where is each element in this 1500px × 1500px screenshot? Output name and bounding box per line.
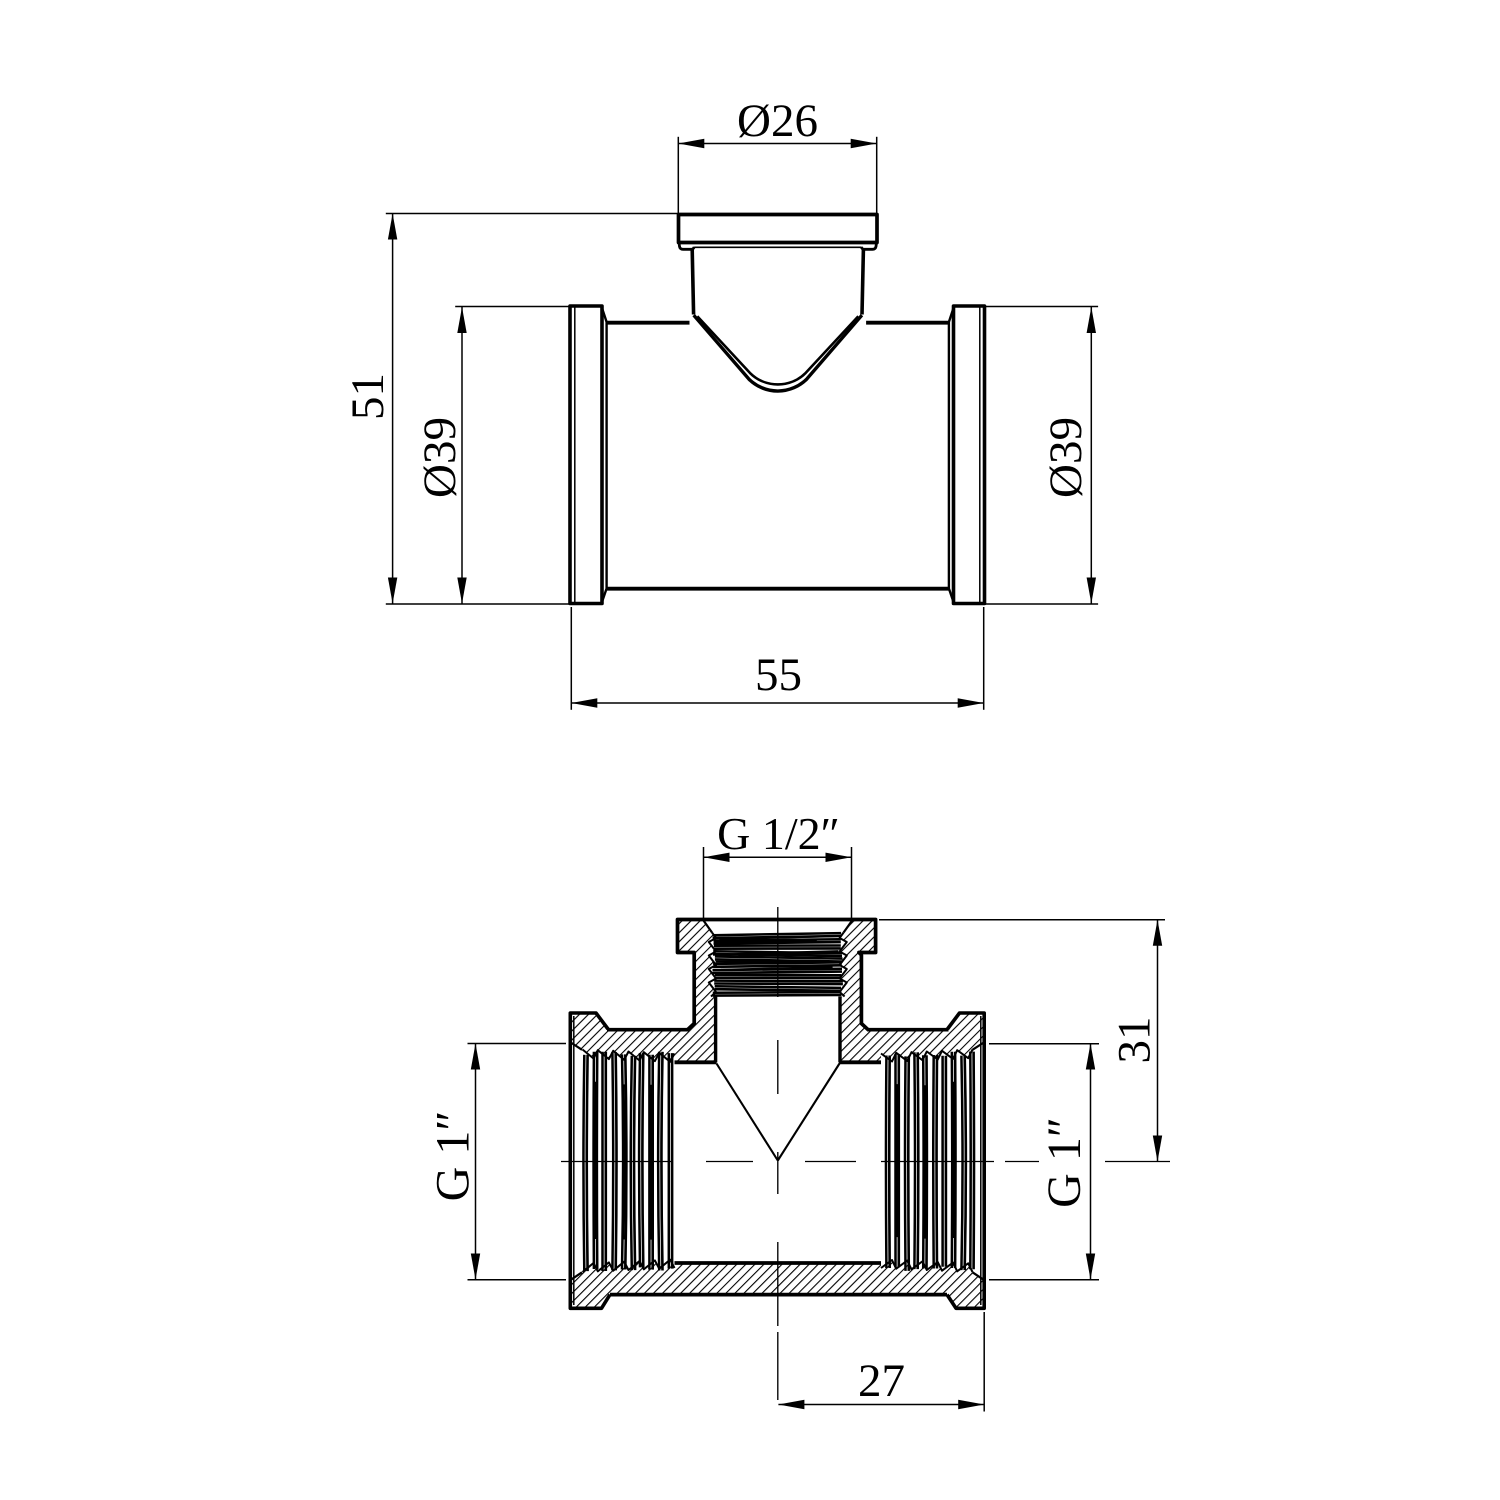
svg-text:27: 27: [858, 1355, 905, 1407]
svg-text:G 1/2″: G 1/2″: [717, 808, 840, 859]
svg-text:G 1″: G 1″: [1038, 1117, 1091, 1208]
svg-text:G 1″: G 1″: [426, 1111, 479, 1202]
svg-text:51: 51: [342, 373, 394, 420]
svg-text:Ø39: Ø39: [1040, 417, 1092, 498]
svg-text:Ø39: Ø39: [414, 417, 466, 498]
svg-text:55: 55: [755, 649, 802, 701]
svg-text:Ø26: Ø26: [737, 95, 818, 147]
svg-text:31: 31: [1109, 1017, 1161, 1064]
